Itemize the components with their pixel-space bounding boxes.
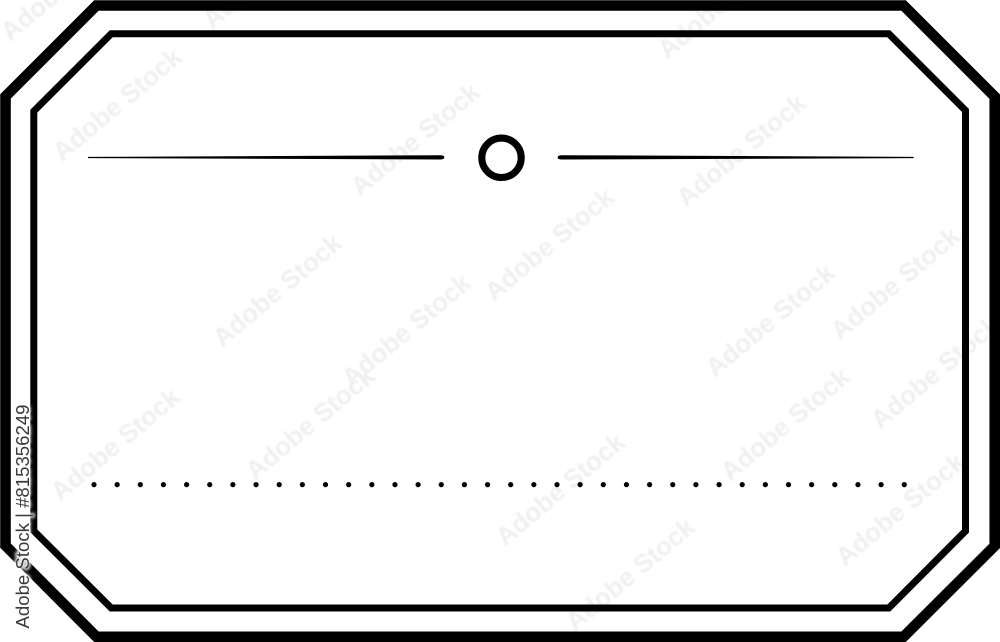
svg-text:Adobe Stock | #815356249: Adobe Stock | #815356249 — [12, 404, 33, 628]
